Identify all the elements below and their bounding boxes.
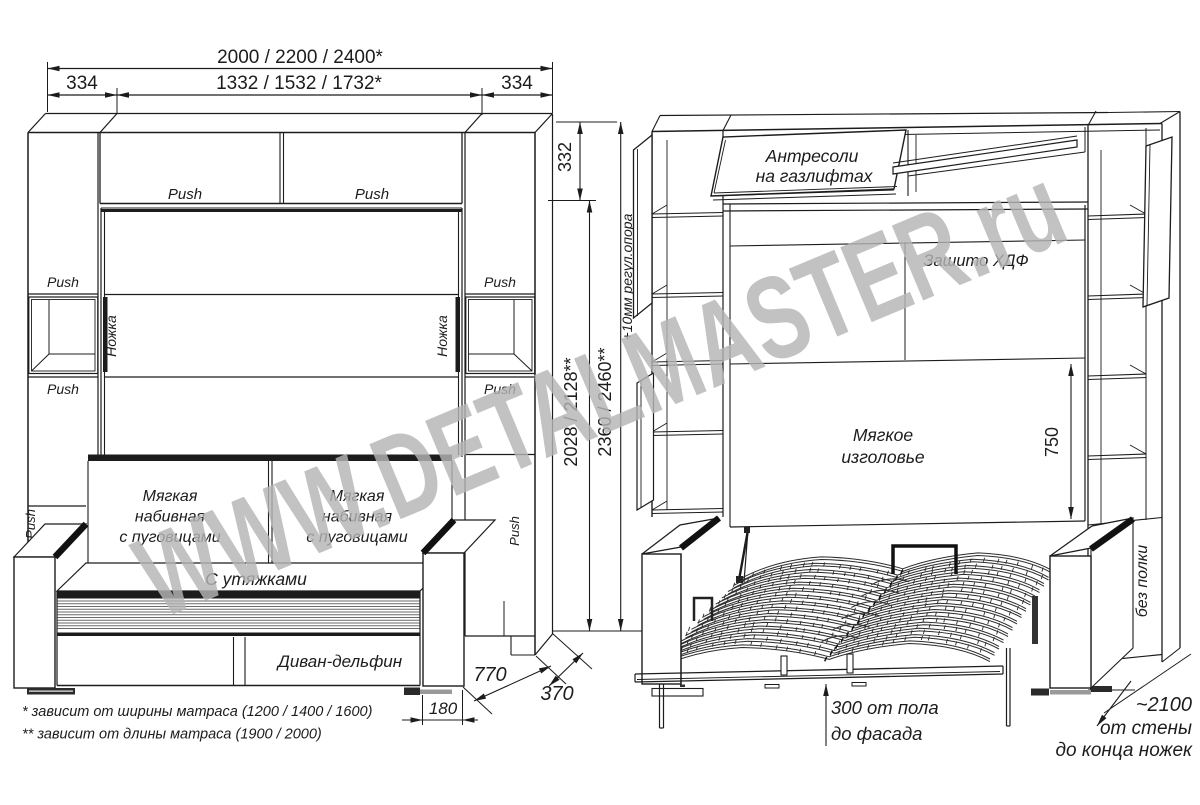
svg-text:Диван-дельфин: Диван-дельфин [276, 652, 403, 671]
svg-text:180: 180 [429, 699, 458, 718]
svg-text:300 от пола: 300 от пола [831, 697, 939, 718]
svg-text:770: 770 [473, 664, 506, 686]
svg-text:Push: Push [47, 274, 79, 290]
svg-text:334: 334 [501, 73, 533, 94]
svg-text:750: 750 [1042, 427, 1062, 457]
svg-text:без полки: без полки [1134, 545, 1151, 618]
svg-text:370: 370 [540, 683, 573, 705]
svg-text:1332 / 1532 / 1732*: 1332 / 1532 / 1732* [216, 73, 382, 94]
svg-text:Push: Push [355, 186, 389, 203]
svg-text:Мягкое: Мягкое [853, 425, 914, 445]
svg-text:Push: Push [168, 186, 202, 203]
svg-text:Push: Push [47, 381, 79, 397]
svg-text:Антресоли: Антресоли [765, 146, 859, 166]
svg-text:Push: Push [507, 516, 522, 546]
svg-text:до фасада: до фасада [831, 723, 922, 744]
svg-text:* зависит от ширины матраса (1: * зависит от ширины матраса (1200 / 1400… [22, 704, 372, 720]
svg-text:332: 332 [555, 142, 575, 172]
svg-text:Ножка: Ножка [103, 315, 119, 357]
svg-text:~2100: ~2100 [1136, 694, 1192, 716]
svg-text:от стены: от стены [1100, 718, 1192, 739]
svg-text:на газлифтах: на газлифтах [756, 166, 874, 186]
svg-text:до конца ножек: до конца ножек [1056, 740, 1194, 761]
svg-text:334: 334 [66, 73, 98, 94]
svg-text:Push: Push [484, 274, 516, 290]
svg-text:** зависит от длины матраса (1: ** зависит от длины матраса (1900 / 2000… [22, 727, 322, 743]
svg-text:2000 / 2200 / 2400*: 2000 / 2200 / 2400* [217, 47, 383, 68]
svg-text:Ножка: Ножка [434, 315, 450, 357]
svg-text:изголовье: изголовье [841, 447, 925, 467]
